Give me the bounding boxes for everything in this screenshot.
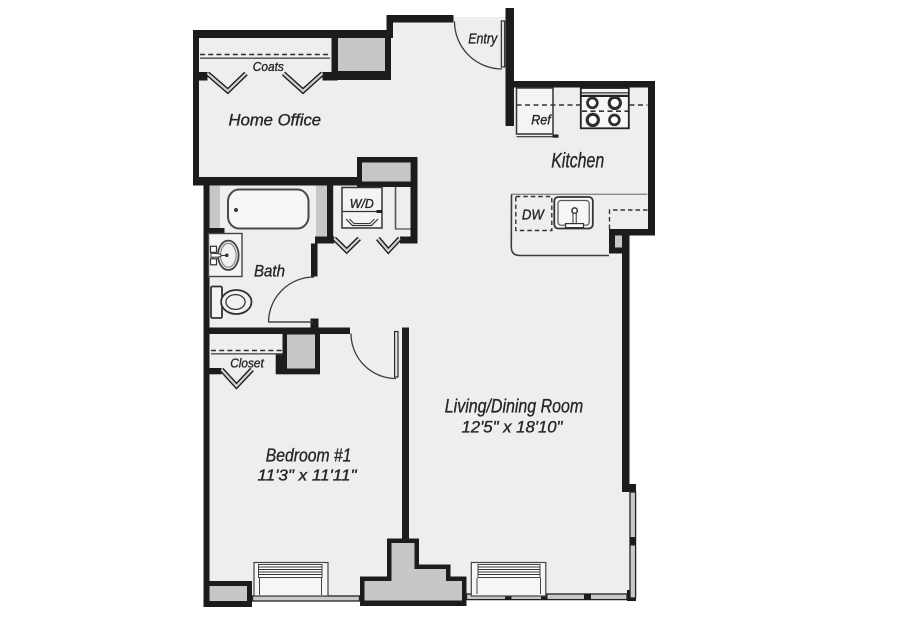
svg-text:Coats: Coats xyxy=(253,60,284,74)
svg-text:Ref: Ref xyxy=(531,113,552,128)
svg-text:Bath: Bath xyxy=(254,262,285,281)
svg-text:DW: DW xyxy=(522,207,545,223)
svg-text:Kitchen: Kitchen xyxy=(551,150,604,173)
svg-text:Entry: Entry xyxy=(468,31,498,48)
svg-text:11'3" x 11'11": 11'3" x 11'11" xyxy=(258,468,358,485)
svg-text:12'5" x 18'10": 12'5" x 18'10" xyxy=(462,419,564,437)
svg-text:Closet: Closet xyxy=(230,356,264,370)
svg-text:Living/Dining Room: Living/Dining Room xyxy=(445,397,583,418)
svg-text:Home Office: Home Office xyxy=(229,112,322,130)
svg-text:Bedroom #1: Bedroom #1 xyxy=(266,446,352,466)
svg-text:W/D: W/D xyxy=(350,197,374,211)
